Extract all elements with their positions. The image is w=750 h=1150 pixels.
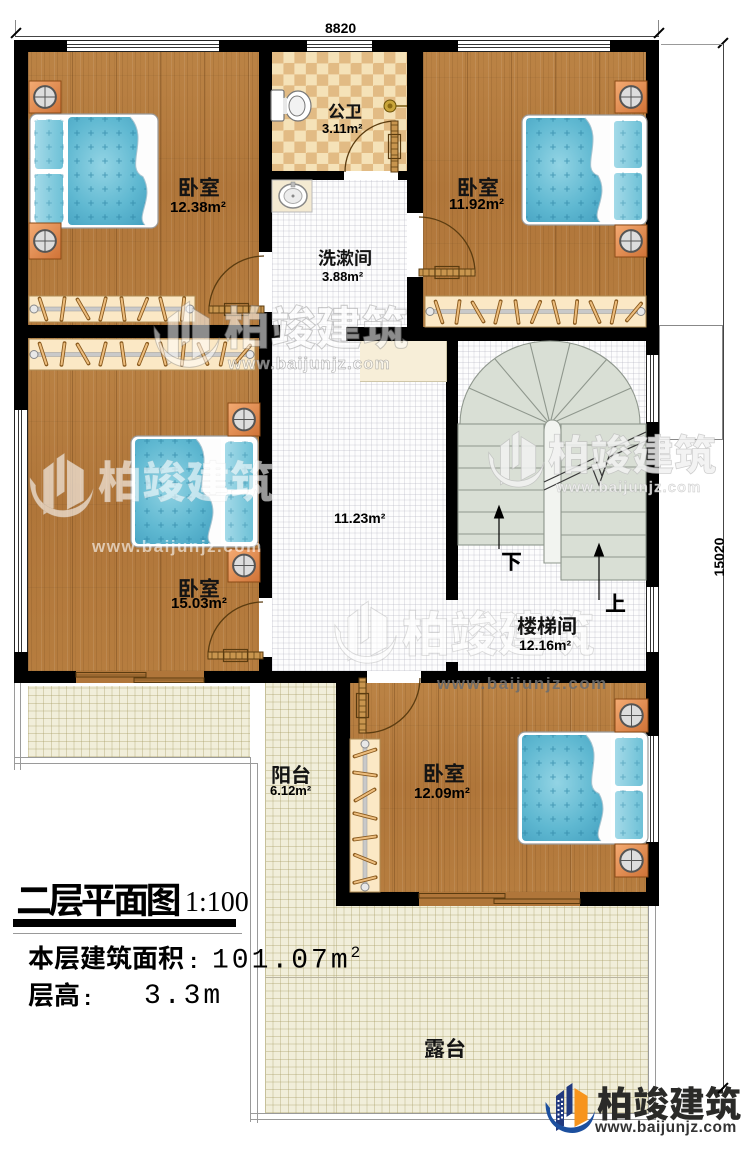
svg-text::: : bbox=[84, 985, 91, 1010]
svg-text::: : bbox=[190, 948, 197, 973]
svg-text:www.baijunjz.com: www.baijunjz.com bbox=[555, 479, 701, 496]
svg-text:www.baijunjz.com: www.baijunjz.com bbox=[594, 1119, 737, 1136]
svg-text:www.baijunjz.com: www.baijunjz.com bbox=[436, 674, 608, 693]
svg-text:www.baijunjz.com: www.baijunjz.com bbox=[227, 354, 391, 373]
svg-text:www.baijunjz.com: www.baijunjz.com bbox=[91, 537, 263, 556]
